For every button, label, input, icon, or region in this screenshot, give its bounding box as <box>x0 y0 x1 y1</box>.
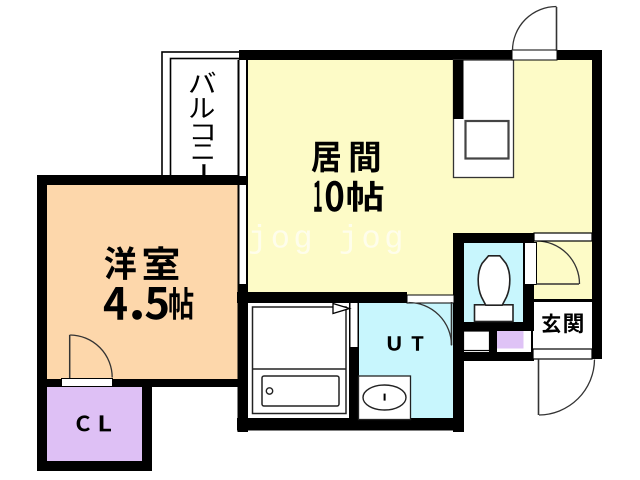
svg-text:jog jog: jog jog <box>248 221 407 258</box>
